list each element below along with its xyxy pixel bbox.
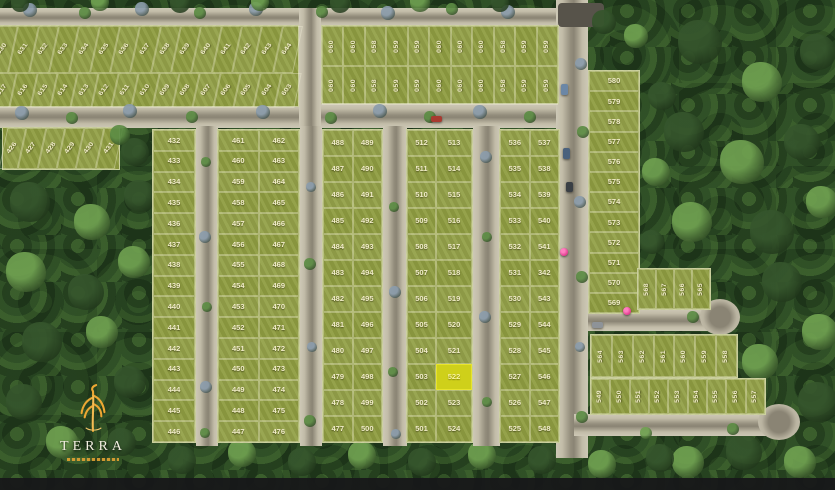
block-432-446: 4324334344354364374384394404414424434444… [152, 129, 196, 443]
tree-icon [528, 446, 556, 474]
lot[interactable]: 501 [407, 416, 436, 442]
lot[interactable]: 435 [153, 192, 195, 213]
lot[interactable]: 456 [218, 234, 259, 255]
lot[interactable]: 481 [323, 312, 353, 338]
tree-icon [6, 252, 46, 292]
lot[interactable]: 571 [589, 253, 639, 273]
lot[interactable]: 514 [436, 156, 472, 182]
lot[interactable]: 552 [649, 379, 668, 414]
lot[interactable]: 484 [323, 234, 353, 260]
tree-icon [307, 342, 317, 352]
lot[interactable]: 580 [589, 71, 639, 91]
lot[interactable]: 530 [500, 286, 530, 312]
lot[interactable]: 517 [436, 234, 472, 260]
lot[interactable]: 469 [259, 276, 300, 297]
tree-icon [577, 126, 589, 138]
tree-icon [798, 382, 835, 422]
tree-icon [726, 434, 762, 470]
terra-logo: TERRA [38, 383, 148, 461]
lot[interactable]: 454 [218, 276, 259, 297]
tree-icon [742, 62, 782, 102]
terra-tree-icon [71, 383, 115, 433]
tree-icon [802, 314, 835, 350]
lot[interactable]: 509 [407, 208, 436, 234]
lot[interactable]: 526 [500, 390, 530, 416]
lot[interactable]: 503 [407, 364, 436, 390]
lot[interactable]: 443 [153, 359, 195, 380]
lot[interactable]: 532 [500, 234, 530, 260]
lot[interactable]: 551 [630, 379, 649, 414]
tree-icon [389, 286, 401, 298]
lot[interactable]: 564 [591, 335, 612, 377]
lot[interactable]: 569 [589, 293, 639, 313]
lot[interactable]: 531 [500, 260, 530, 286]
tree-icon [325, 112, 337, 124]
tree-icon [588, 450, 616, 478]
tree-icon [168, 446, 196, 474]
lot[interactable]: 572 [589, 232, 639, 252]
tree-icon [186, 111, 198, 123]
tree-icon [592, 10, 616, 34]
tree-icon [524, 111, 536, 123]
lot[interactable]: 492 [353, 208, 383, 234]
tree-icon [664, 112, 704, 152]
lot[interactable]: 547 [530, 390, 560, 416]
lot[interactable]: 527 [500, 364, 530, 390]
lot[interactable]: 488 [323, 130, 353, 156]
lot[interactable]: 550 [610, 379, 629, 414]
block-558-564: 564563562561560559558 [590, 334, 738, 378]
lot[interactable]: 489 [353, 130, 383, 156]
lot[interactable]: 499 [353, 390, 383, 416]
tree-icon [200, 428, 210, 438]
lot[interactable]: 059 [408, 26, 429, 66]
lot[interactable]: 436 [153, 213, 195, 234]
tree-icon [646, 444, 674, 472]
lot[interactable]: 480 [323, 338, 353, 364]
tree-icon [110, 125, 130, 145]
lot[interactable]: 473 [259, 359, 300, 380]
lot[interactable]: 465 [259, 192, 300, 213]
tree-icon [575, 58, 587, 70]
lot[interactable]: 440 [153, 296, 195, 317]
lot[interactable]: 452 [218, 317, 259, 338]
tree-icon [194, 7, 206, 19]
lot-column: 4324334344354364374384394404414424434444… [153, 130, 195, 442]
lot[interactable]: 515 [436, 182, 472, 208]
lot-selected[interactable]: 522 [436, 364, 472, 390]
lot[interactable]: 549 [591, 379, 610, 414]
lot[interactable]: 342 [530, 260, 560, 286]
tree-icon [720, 140, 764, 184]
lot[interactable]: 487 [323, 156, 353, 182]
tree-icon [66, 112, 78, 124]
tree-icon [678, 20, 722, 64]
tree-icon [348, 441, 376, 469]
lot-column: 489490491492493494495496497498499500 [353, 130, 383, 442]
lot[interactable]: 059 [386, 66, 407, 105]
lot[interactable]: 058 [365, 26, 386, 66]
tree-icon [6, 384, 42, 420]
lot[interactable]: 466 [259, 213, 300, 234]
lot[interactable]: 059 [537, 66, 558, 105]
lot[interactable]: 060 [343, 66, 364, 105]
lot-column: 513514515516517518519520521522523524 [436, 130, 472, 442]
lot[interactable]: 511 [407, 156, 436, 182]
lot[interactable]: 059 [386, 26, 407, 66]
lot[interactable]: 504 [407, 338, 436, 364]
lot-column: 512511510509508507506505504503502501 [407, 130, 436, 442]
road-grid-a [196, 126, 218, 446]
lot[interactable]: 561 [654, 335, 675, 377]
lot[interactable]: 477 [323, 416, 353, 442]
lot[interactable]: 058 [494, 66, 515, 105]
lot[interactable]: 576 [589, 152, 639, 172]
tree-icon [306, 182, 316, 192]
lot[interactable]: 574 [589, 192, 639, 212]
lot[interactable]: 512 [407, 130, 436, 156]
lot[interactable]: 579 [589, 91, 639, 111]
lot[interactable]: 496 [353, 312, 383, 338]
lot[interactable]: 060 [472, 66, 493, 105]
tree-icon [648, 82, 676, 110]
lot[interactable]: 486 [323, 182, 353, 208]
lot[interactable]: 540 [530, 208, 560, 234]
lot[interactable]: 460 [218, 151, 259, 172]
lot[interactable]: 539 [530, 182, 560, 208]
lot[interactable]: 554 [688, 379, 707, 414]
tree-icon [672, 446, 704, 478]
bottom-bar [0, 478, 835, 490]
lot[interactable]: 059 [537, 26, 558, 66]
lot[interactable]: 058 [365, 66, 386, 105]
lot[interactable]: 567 [656, 269, 674, 309]
tree-icon [202, 302, 212, 312]
logo-tagline [67, 458, 119, 461]
lot[interactable]: 508 [407, 234, 436, 260]
lot[interactable]: 538 [530, 156, 560, 182]
lot[interactable]: 577 [589, 132, 639, 152]
lot[interactable]: 566 [674, 269, 692, 309]
tree-icon [22, 322, 62, 362]
tree-icon [640, 427, 652, 439]
lot[interactable]: 545 [530, 338, 560, 364]
car-icon [563, 148, 570, 159]
lot[interactable]: 472 [259, 338, 300, 359]
lot[interactable]: 533 [500, 208, 530, 234]
lot[interactable]: 494 [353, 260, 383, 286]
lot[interactable]: 493 [353, 234, 383, 260]
block-426-431: 426427428429430431 [2, 127, 120, 170]
lot[interactable]: 453 [218, 296, 259, 317]
lot[interactable]: 060 [322, 66, 343, 105]
lot-column: 537538539540541342543544545546547548 [530, 130, 560, 442]
tree-icon [304, 415, 316, 427]
tree-icon [79, 7, 91, 19]
block-630-644: 6306316326336346356366376386396406416426… [0, 25, 299, 107]
lot[interactable]: 541 [530, 234, 560, 260]
lot[interactable]: 060 [429, 26, 450, 66]
tree-icon [640, 230, 664, 254]
tree-icon [391, 429, 401, 439]
lot[interactable]: 563 [612, 335, 633, 377]
tree-icon [10, 182, 50, 222]
lot[interactable]: 439 [153, 276, 195, 297]
lot[interactable]: 534 [500, 182, 530, 208]
lot-row: 060060058059059060060060058059059 [322, 26, 558, 66]
car-icon [566, 182, 573, 192]
lot-row: 568567566565 [638, 269, 710, 309]
tree-icon [480, 151, 492, 163]
location-pin-icon[interactable] [623, 307, 631, 315]
tree-icon [316, 6, 328, 18]
lot[interactable]: 557 [746, 379, 765, 414]
tree-icon [86, 316, 118, 348]
lot[interactable]: 433 [153, 151, 195, 172]
lot[interactable]: 471 [259, 317, 300, 338]
lot[interactable]: 573 [589, 212, 639, 232]
lot-row: 549550551552553554555556557 [591, 379, 765, 414]
lot[interactable]: 445 [153, 400, 195, 421]
lot[interactable]: 495 [353, 286, 383, 312]
lot-row: 060060058059059060060060058059059 [322, 66, 558, 105]
logo-wordmark: TERRA [38, 439, 148, 455]
lot[interactable]: 060 [429, 66, 450, 105]
lot[interactable]: 060 [343, 26, 364, 66]
tree-icon [446, 3, 458, 15]
lot[interactable]: 442 [153, 338, 195, 359]
tree-icon [672, 202, 712, 242]
lot[interactable]: 556 [726, 379, 745, 414]
tree-icon [200, 381, 212, 393]
car-icon [431, 116, 442, 122]
lot[interactable]: 483 [323, 260, 353, 286]
lot[interactable]: 543 [530, 286, 560, 312]
tree-icon [228, 439, 256, 467]
lot[interactable]: 497 [353, 338, 383, 364]
lot[interactable]: 518 [436, 260, 472, 286]
lot[interactable]: 575 [589, 172, 639, 192]
tree-icon [408, 448, 436, 476]
lot[interactable]: 535 [500, 156, 530, 182]
tree-icon [576, 411, 588, 423]
lot[interactable]: 455 [218, 255, 259, 276]
tree-icon [482, 232, 492, 242]
tree-icon [750, 210, 794, 254]
lot[interactable]: 450 [218, 359, 259, 380]
block-565-568: 568567566565 [637, 268, 711, 310]
master-plan-map: 6306316326336346356366376386396406416426… [0, 0, 835, 490]
lot[interactable]: 474 [259, 380, 300, 401]
tree-icon [742, 344, 778, 380]
block-569-580: 580579578577576575574573572571570569 [588, 70, 640, 314]
lot[interactable]: 060 [322, 26, 343, 66]
block-549-557: 549550551552553554555556557 [590, 378, 766, 415]
lot[interactable]: 524 [436, 416, 472, 442]
lot[interactable]: 444 [153, 380, 195, 401]
lot[interactable]: 528 [500, 338, 530, 364]
lot[interactable]: 521 [436, 338, 472, 364]
tree-icon [201, 157, 211, 167]
lot[interactable]: 446 [153, 421, 195, 442]
lot[interactable]: 441 [153, 317, 195, 338]
block-501-524: 512511510509508507506505504503502501 513… [406, 129, 473, 443]
lot-column: 488487486485484483482481480479478477 [323, 130, 353, 442]
tree-icon [288, 448, 316, 476]
tree-icon [256, 105, 270, 119]
tree-icon [806, 186, 835, 218]
lot[interactable]: 467 [259, 234, 300, 255]
lot-column: 4624634644654664674684694704714724734744… [259, 130, 300, 442]
lot[interactable]: 438 [153, 255, 195, 276]
lot[interactable]: 525 [500, 416, 530, 442]
lot-column: 536535534533532531530529528527526525 [500, 130, 530, 442]
lot[interactable]: 529 [500, 312, 530, 338]
tree-icon [687, 311, 699, 323]
tree-icon [762, 262, 802, 302]
tree-icon [135, 2, 149, 16]
lot[interactable]: 491 [353, 182, 383, 208]
lot[interactable]: 537 [530, 130, 560, 156]
car-icon [592, 322, 603, 328]
lot[interactable]: 558 [716, 335, 737, 377]
lot-row: 564563562561560559558 [591, 335, 737, 377]
lot[interactable]: 555 [707, 379, 726, 414]
road-grid-b [300, 126, 322, 446]
lot[interactable]: 570 [589, 273, 639, 293]
tree-icon [482, 397, 492, 407]
lot[interactable]: 505 [407, 312, 436, 338]
lot[interactable]: 451 [218, 338, 259, 359]
tree-icon [389, 202, 399, 212]
lot[interactable]: 461 [218, 130, 259, 151]
lot[interactable]: 448 [218, 400, 259, 421]
lot[interactable]: 060 [472, 26, 493, 66]
lot[interactable]: 470 [259, 296, 300, 317]
block-477-500: 488487486485484483482481480479478477 489… [322, 129, 383, 443]
lot[interactable]: 490 [353, 156, 383, 182]
lot[interactable]: 059 [408, 66, 429, 105]
lot[interactable]: 437 [153, 234, 195, 255]
lot-row: 6306316326336346356366376386396406416426… [0, 26, 303, 73]
lot[interactable]: 548 [530, 416, 560, 442]
lot[interactable]: 559 [695, 335, 716, 377]
tree-icon [304, 258, 316, 270]
car-icon [561, 84, 568, 95]
lot[interactable]: 468 [259, 255, 300, 276]
lot[interactable]: 449 [218, 380, 259, 401]
tree-icon [74, 204, 110, 240]
lot-row: 6176166156146136126116106096086076066056… [0, 73, 302, 108]
lot[interactable]: 059 [515, 26, 536, 66]
lot[interactable]: 462 [259, 130, 300, 151]
tree-icon [575, 342, 585, 352]
lot-column: 580579578577576575574573572571570569 [589, 71, 639, 313]
tree-icon [800, 34, 835, 70]
lot[interactable]: 475 [259, 400, 300, 421]
block-525-548: 536535534533532531530529528527526525 537… [499, 129, 560, 443]
lot[interactable]: 478 [323, 390, 353, 416]
lot[interactable]: 578 [589, 111, 639, 131]
lot[interactable]: 432 [153, 130, 195, 151]
lot[interactable]: 560 [674, 335, 695, 377]
block-058-060: 060060058059059060060060058059059 060060… [321, 25, 559, 104]
lot[interactable]: 479 [323, 364, 353, 390]
lot[interactable]: 458 [218, 192, 259, 213]
tree-icon [574, 196, 586, 208]
tree-icon [473, 105, 487, 119]
lot[interactable]: 434 [153, 172, 195, 193]
lot[interactable]: 553 [668, 379, 687, 414]
tree-icon [388, 367, 398, 377]
lot[interactable]: 565 [692, 269, 710, 309]
lot[interactable]: 507 [407, 260, 436, 286]
tree-icon [199, 231, 211, 243]
tree-icon [624, 24, 648, 48]
lot[interactable]: 519 [436, 286, 472, 312]
lot[interactable]: 060 [451, 66, 472, 105]
tree-icon [373, 104, 387, 118]
lot[interactable]: 060 [451, 26, 472, 66]
tree-icon [576, 271, 588, 283]
tree-icon [123, 104, 137, 118]
tree-icon [479, 311, 491, 323]
tree-icon [642, 158, 670, 186]
lot[interactable]: 536 [500, 130, 530, 156]
lot[interactable]: 520 [436, 312, 472, 338]
lot[interactable]: 500 [353, 416, 383, 442]
lot[interactable]: 510 [407, 182, 436, 208]
tree-icon [381, 6, 395, 20]
lot[interactable]: 485 [323, 208, 353, 234]
lot-row: 426427428429430431 [0, 128, 123, 169]
lot[interactable]: 058 [494, 26, 515, 66]
tree-icon [15, 106, 29, 120]
lot[interactable]: 562 [633, 335, 654, 377]
lot[interactable]: 502 [407, 390, 436, 416]
lot[interactable]: 457 [218, 213, 259, 234]
tree-icon [727, 423, 739, 435]
location-pin-icon[interactable] [560, 248, 568, 256]
lot-column: 4614604594584574564554544534524514504494… [218, 130, 259, 442]
lot[interactable]: 476 [259, 421, 300, 442]
lot[interactable]: 513 [436, 130, 472, 156]
lot[interactable]: 059 [515, 66, 536, 105]
lot[interactable]: 482 [323, 286, 353, 312]
lot[interactable]: 546 [530, 364, 560, 390]
lot[interactable]: 568 [638, 269, 656, 309]
lot[interactable]: 447 [218, 421, 259, 442]
lot[interactable]: 463 [259, 151, 300, 172]
lot[interactable]: 516 [436, 208, 472, 234]
lot[interactable]: 459 [218, 172, 259, 193]
tree-icon [68, 274, 104, 310]
lot[interactable]: 498 [353, 364, 383, 390]
tree-icon [118, 246, 150, 278]
lot[interactable]: 506 [407, 286, 436, 312]
tree-icon [784, 124, 820, 160]
lot[interactable]: 464 [259, 172, 300, 193]
block-447-476: 4614604594584574564554544534524514504494… [217, 129, 300, 443]
tree-icon [784, 446, 816, 478]
lot[interactable]: 523 [436, 390, 472, 416]
lot[interactable]: 544 [530, 312, 560, 338]
